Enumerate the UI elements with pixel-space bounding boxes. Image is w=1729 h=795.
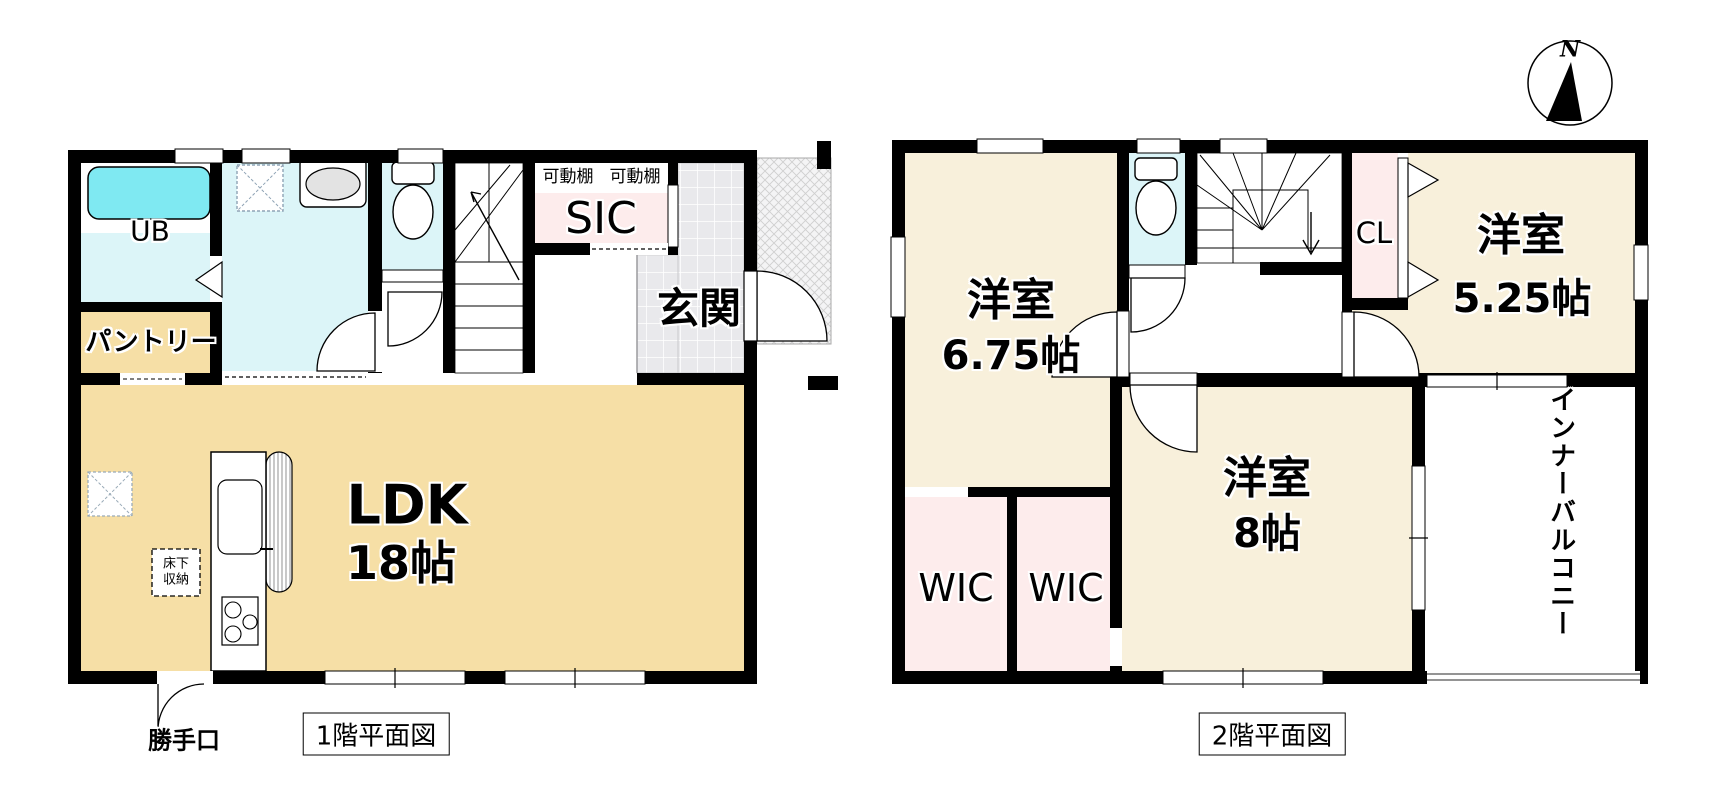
toilet-fixture-2f	[1135, 158, 1177, 235]
room-label-genkan: 玄関	[657, 287, 741, 331]
floorplan-page: N UB パントリー 可動棚 可動棚 SIC 玄関 LDK 18帖 床下 収納 …	[0, 0, 1729, 795]
compass-north-label: N	[1560, 38, 1580, 61]
floor1-caption: 1階平面図	[303, 713, 450, 756]
room-label-ldk: LDK	[346, 478, 467, 535]
room-label-east: 洋室	[1477, 213, 1565, 259]
floorplan-drawing	[0, 0, 1729, 795]
toilet-door-1f	[388, 292, 442, 346]
label-movable-shelf-right: 可動棚	[610, 169, 661, 187]
toilet-door-2f	[1131, 278, 1185, 332]
washing-machine-pan	[237, 165, 283, 211]
toilet-fixture-1f	[392, 162, 434, 239]
cl-door	[1398, 158, 1408, 298]
underfloor-line2: 収納	[163, 572, 189, 588]
room-label-wic-left: WIC	[918, 569, 993, 609]
room-label-west: 洋室	[967, 278, 1055, 324]
room-label-pantry: パントリー	[85, 329, 216, 356]
room-size-south: 8帖	[1233, 513, 1301, 555]
back-door	[158, 684, 204, 730]
underfloor-line1: 床下	[163, 556, 189, 572]
stairs-2f	[1197, 153, 1342, 263]
room-label-cl: CL	[1356, 218, 1392, 248]
kitchen-sink	[218, 480, 262, 554]
floor1-plan	[68, 141, 838, 730]
label-underfloor-storage: 床下 収納	[163, 556, 189, 587]
stairs-1f	[455, 163, 523, 373]
room-label-ub: UB	[130, 216, 170, 245]
kitchen-stove	[222, 597, 258, 645]
room-label-inner-balcony: インナーバルコニー	[1546, 386, 1573, 638]
label-movable-shelf-left: 可動棚	[543, 169, 594, 187]
label-back-door: 勝手口	[148, 728, 220, 753]
room-size-east: 5.25帖	[1453, 278, 1592, 320]
room-label-south: 洋室	[1223, 456, 1311, 502]
room-label-wic-right: WIC	[1028, 569, 1103, 609]
floor-equipment-mark	[88, 472, 132, 516]
room-size-west: 6.75帖	[942, 335, 1081, 377]
room-size-ldk: 18帖	[346, 539, 456, 587]
sic-door	[668, 185, 678, 247]
vanity-sink	[300, 157, 366, 207]
room-label-sic: SIC	[565, 196, 637, 242]
floor2-caption: 2階平面図	[1199, 713, 1346, 756]
